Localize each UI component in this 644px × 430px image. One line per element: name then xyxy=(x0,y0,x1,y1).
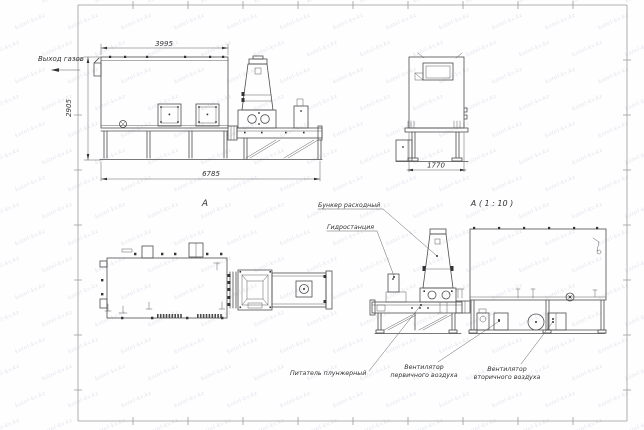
end-hatch xyxy=(423,63,453,80)
technical-drawing: Выход газов 3995 2905 xyxy=(0,0,644,430)
callout-primary-fan-line2: первичного воздуха xyxy=(390,372,457,379)
dim-1770: 1770 xyxy=(427,162,445,170)
callout-primary-fan-line1: Вентилятор xyxy=(404,364,443,371)
detail-view: Бункер расходный Гидростанция xyxy=(290,202,606,381)
secondary-air-fan xyxy=(528,313,566,330)
gas-outlet-label: Выход газов xyxy=(38,55,84,63)
detail-view-label: A ( 1 : 10 ) xyxy=(470,199,513,208)
dim-2905: 2905 xyxy=(65,99,73,117)
plan-view xyxy=(100,243,332,319)
valve xyxy=(120,121,127,128)
dim-6785: 6785 xyxy=(202,170,220,178)
callout-feeder: Питатель плунжерный xyxy=(290,370,366,377)
end-view: 1770 xyxy=(396,53,468,172)
callout-hydraulic: Гидростанция xyxy=(327,224,374,231)
hatch-right xyxy=(196,104,219,126)
hydraulic-station xyxy=(386,274,406,302)
dim-3995: 3995 xyxy=(155,40,173,48)
callout-secondary-fan-line2: вторичного воздуха xyxy=(474,374,541,381)
detail-hopper-tower xyxy=(420,229,456,302)
callout-secondary-fan-line1: Вентилятор xyxy=(487,366,526,373)
callout-hopper: Бункер расходный xyxy=(318,202,380,209)
side-view: Выход газов 3995 2905 xyxy=(38,40,322,181)
plunger-feeder xyxy=(370,300,470,334)
detail-furnace-body xyxy=(456,227,606,334)
drive-box xyxy=(294,106,308,128)
hatch-left xyxy=(158,104,181,126)
hopper-tower xyxy=(238,56,276,128)
gas-outlet-flange xyxy=(94,58,101,76)
plan-view-label: A xyxy=(201,199,208,209)
sheet-frame xyxy=(74,1,631,425)
drawing-sheet: kotel-kv.kzkotel-kv.kzkotel-kv.kzkotel-k… xyxy=(0,0,644,430)
primary-air-fan xyxy=(477,309,508,330)
